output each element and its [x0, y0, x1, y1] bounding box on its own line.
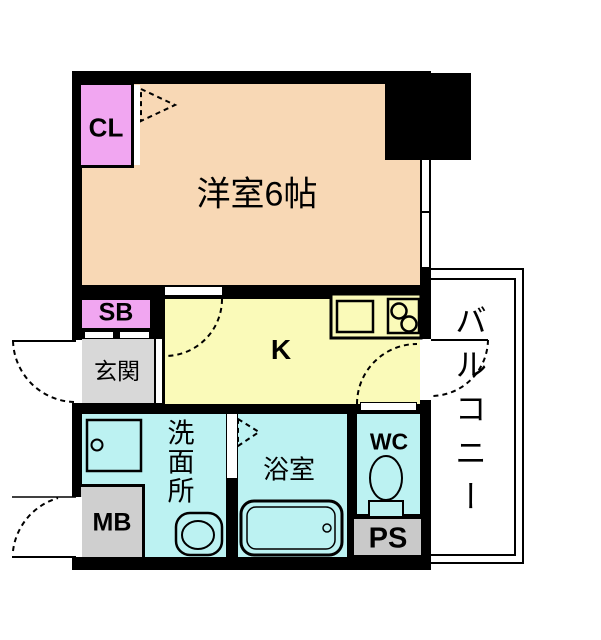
- label-wc: WC: [370, 429, 408, 456]
- label-bathroom: 浴室: [263, 450, 315, 487]
- label-entrance: 玄関: [94, 352, 140, 386]
- shoe-box-door-right: [119, 331, 150, 339]
- label-kitchen: K: [271, 334, 291, 366]
- entrance-step-line: [156, 339, 162, 403]
- wc-doorway: [360, 402, 417, 411]
- meter-box-door-swing-arc: [13, 498, 58, 551]
- closet-door-post: [134, 85, 140, 165]
- label-western-room: 洋室6帖: [197, 167, 318, 216]
- label-pipe-space: PS: [369, 523, 408, 556]
- label-meter-box: MB: [93, 509, 132, 538]
- meter-box-door-opening: [72, 497, 82, 557]
- label-shoe-box: SB: [99, 299, 134, 328]
- room-kitchen: [165, 299, 420, 404]
- floorplan: 洋室6帖 CL SB 玄関 K 洗面所 浴室 WC MB PS バルコニー: [0, 0, 601, 640]
- label-closet: CL: [89, 113, 124, 144]
- bathroom-door-post: [227, 414, 237, 478]
- kitchen-doorway: [165, 287, 222, 297]
- balcony-door-opening: [420, 339, 431, 400]
- window-west-wall: [420, 160, 431, 267]
- window-mullion: [420, 211, 431, 213]
- entry-door-swing-arc: [13, 341, 74, 402]
- structural-pillar: [385, 73, 471, 160]
- label-balcony: バルコニー: [446, 304, 492, 524]
- shoe-box-door-left: [84, 331, 114, 339]
- entry-door-opening: [72, 340, 82, 403]
- label-washroom: 洗面所: [160, 419, 199, 506]
